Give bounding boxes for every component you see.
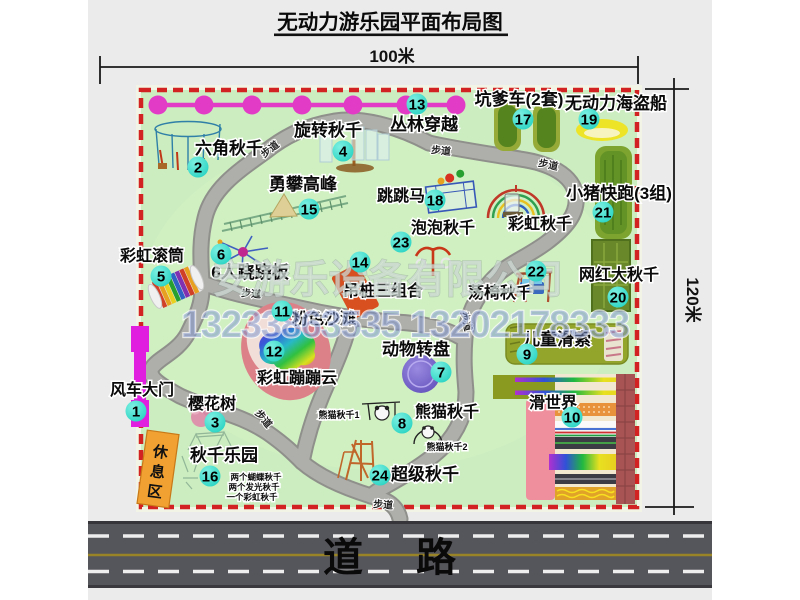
svg-text:13: 13 xyxy=(409,97,426,114)
svg-text:超级秋千: 超级秋千 xyxy=(391,464,459,484)
svg-text:熊猫秋千2: 熊猫秋千2 xyxy=(426,441,467,452)
svg-text:泡泡秋千: 泡泡秋千 xyxy=(411,218,475,237)
svg-text:勇攀高峰: 勇攀高峰 xyxy=(269,174,338,194)
svg-text:120米: 120米 xyxy=(683,277,703,323)
svg-text:5: 5 xyxy=(157,269,165,286)
svg-text:熊猫秋千: 熊猫秋千 xyxy=(415,402,479,421)
svg-text:20: 20 xyxy=(610,290,627,307)
svg-text:网红大秋千: 网红大秋千 xyxy=(579,265,659,284)
svg-text:无动力游乐园平面布局图: 无动力游乐园平面布局图 xyxy=(277,10,503,34)
svg-text:23: 23 xyxy=(393,235,410,252)
svg-text:一个彩虹秋千: 一个彩虹秋千 xyxy=(226,492,278,502)
svg-text:15: 15 xyxy=(301,202,318,219)
svg-text:路: 路 xyxy=(416,536,457,580)
svg-text:6: 6 xyxy=(217,247,225,264)
svg-text:10: 10 xyxy=(564,410,581,427)
svg-text:丛林穿越: 丛林穿越 xyxy=(390,114,459,134)
svg-text:13233863535 13202178333: 13233863535 13202178333 xyxy=(181,304,629,346)
svg-text:无动力海盗船: 无动力海盗船 xyxy=(564,93,667,113)
svg-text:2: 2 xyxy=(194,160,202,177)
svg-text:樱花树: 樱花树 xyxy=(188,394,236,413)
svg-text:16: 16 xyxy=(202,469,219,486)
svg-text:100米: 100米 xyxy=(369,46,415,66)
svg-text:14: 14 xyxy=(352,255,369,272)
svg-text:17: 17 xyxy=(515,112,532,129)
svg-text:1: 1 xyxy=(132,404,140,421)
svg-text:彩虹滚筒: 彩虹滚筒 xyxy=(119,246,184,265)
svg-text:22: 22 xyxy=(528,264,545,281)
svg-text:六角秋千: 六角秋千 xyxy=(195,138,263,158)
svg-text:18: 18 xyxy=(427,193,444,210)
svg-text:两个蝴蝶秋千: 两个蝴蝶秋千 xyxy=(230,472,282,482)
svg-text:11: 11 xyxy=(274,304,290,321)
svg-text:坑爹车(2套): 坑爹车(2套) xyxy=(475,89,564,109)
svg-text:熊猫秋千1: 熊猫秋千1 xyxy=(318,409,359,420)
svg-text:19: 19 xyxy=(581,112,598,129)
svg-text:安游乐设备有限公司: 安游乐设备有限公司 xyxy=(212,259,563,302)
svg-text:8: 8 xyxy=(398,416,406,433)
svg-text:风车大门: 风车大门 xyxy=(110,380,174,399)
svg-text:4: 4 xyxy=(339,144,348,161)
svg-text:3: 3 xyxy=(211,415,219,432)
svg-text:彩虹蹦蹦云: 彩虹蹦蹦云 xyxy=(256,368,337,387)
svg-text:两个发光秋千: 两个发光秋千 xyxy=(228,482,280,492)
svg-text:旋转秋千: 旋转秋千 xyxy=(293,120,362,140)
svg-text:9: 9 xyxy=(523,347,531,364)
svg-text:息: 息 xyxy=(149,462,166,482)
svg-text:小猪快跑(3组): 小猪快跑(3组) xyxy=(566,183,672,203)
svg-text:彩虹秋千: 彩虹秋千 xyxy=(507,214,572,233)
svg-text:道: 道 xyxy=(323,536,363,580)
svg-text:21: 21 xyxy=(595,205,612,222)
svg-text:12: 12 xyxy=(266,344,283,361)
svg-text:24: 24 xyxy=(372,468,389,485)
svg-text:秋千乐园: 秋千乐园 xyxy=(190,445,258,465)
svg-text:跳跳马: 跳跳马 xyxy=(377,186,425,205)
svg-text:7: 7 xyxy=(437,365,445,382)
svg-text:区: 区 xyxy=(146,483,163,502)
